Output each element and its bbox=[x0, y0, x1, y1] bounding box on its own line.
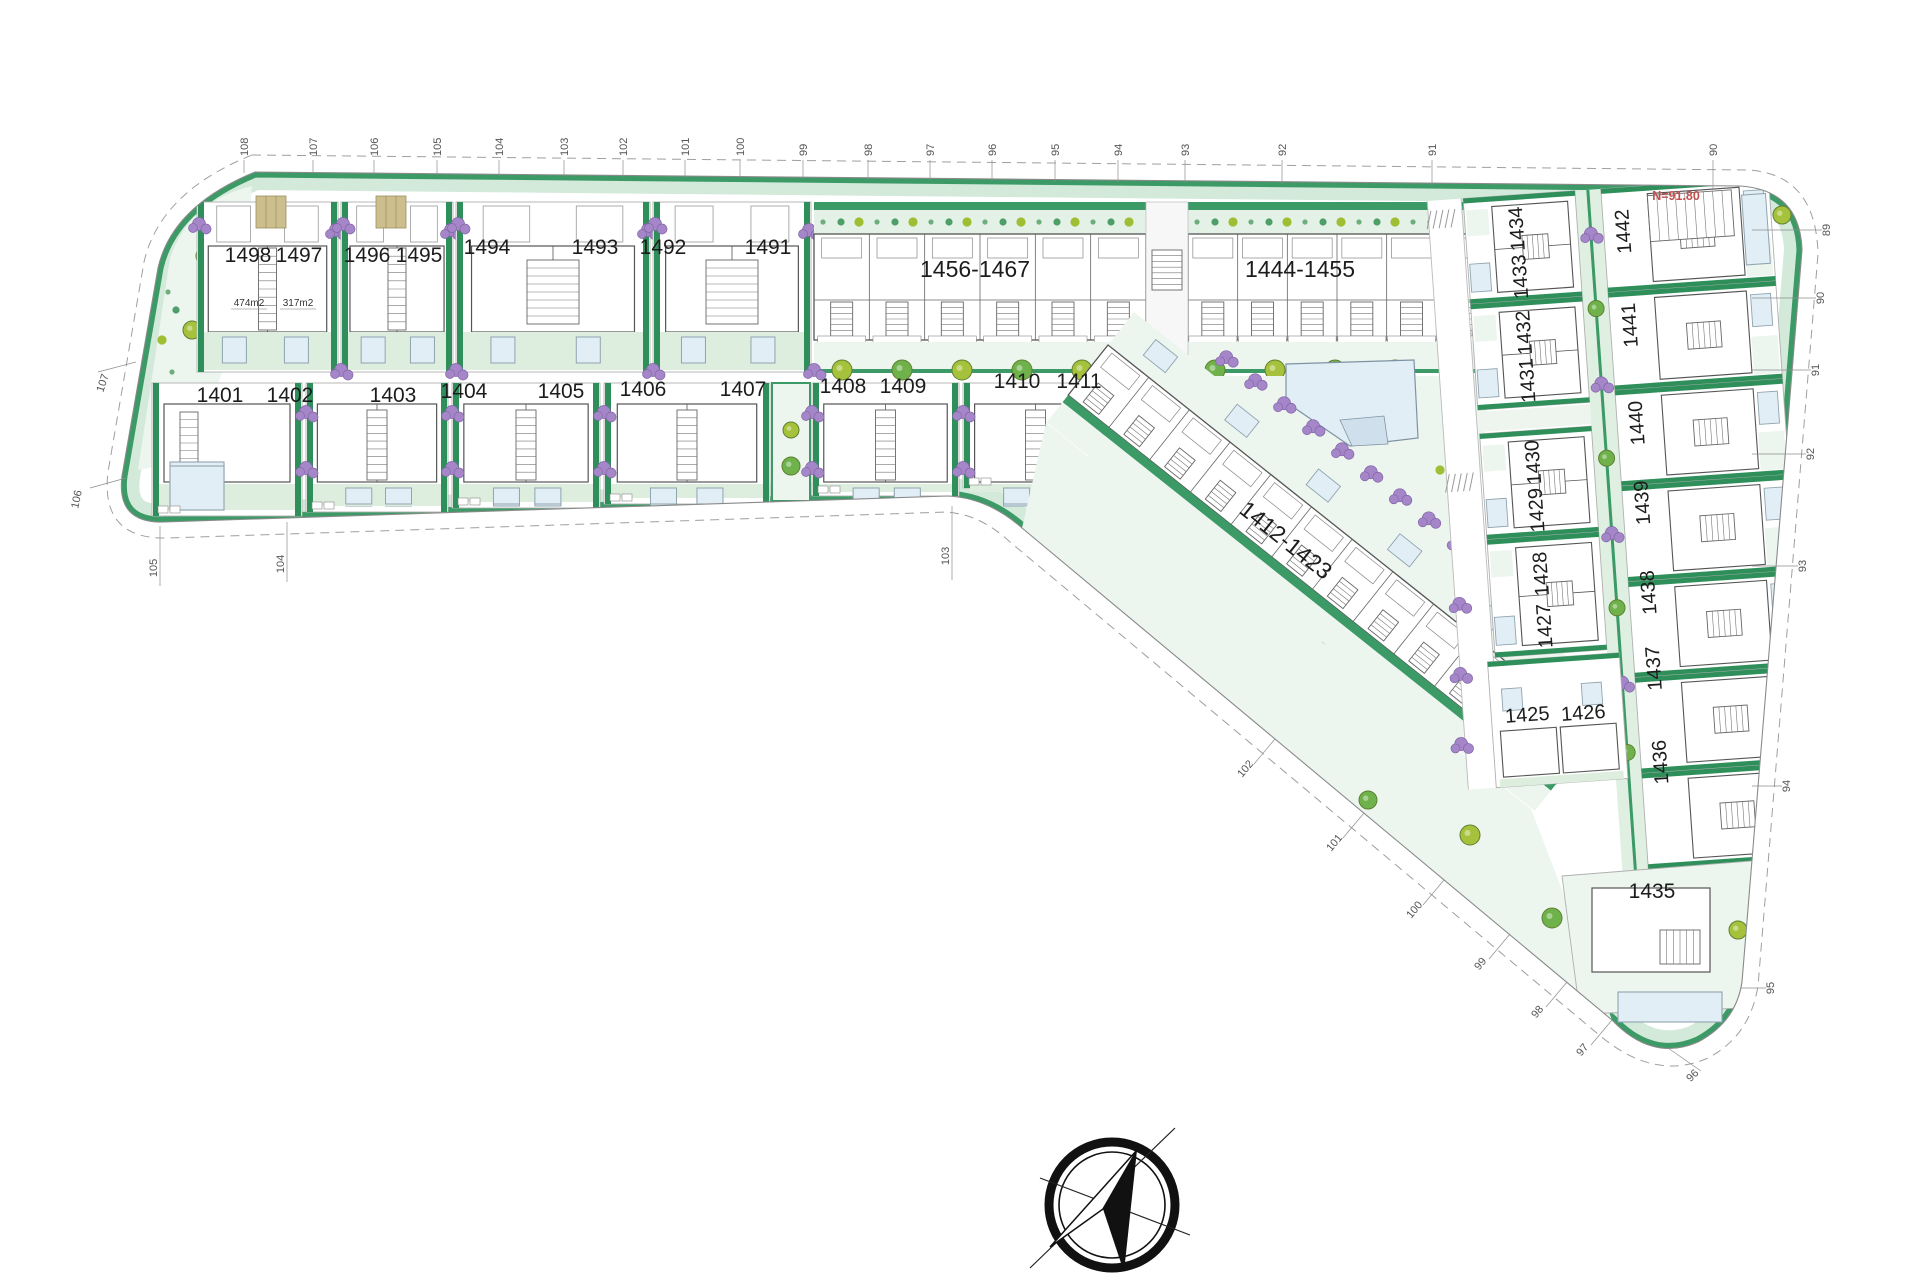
hedge bbox=[605, 383, 611, 504]
planting-dot bbox=[1090, 219, 1095, 224]
shrub bbox=[1547, 990, 1557, 1000]
plot-label-1441: 1441 bbox=[1618, 302, 1643, 348]
tree bbox=[952, 360, 972, 380]
shrub bbox=[201, 224, 211, 234]
house bbox=[1500, 727, 1559, 777]
shrub bbox=[343, 370, 353, 380]
shrub bbox=[1603, 383, 1614, 394]
pool bbox=[493, 488, 519, 504]
shrub bbox=[606, 468, 616, 478]
roof-garden-edge bbox=[814, 202, 1146, 210]
pool bbox=[222, 337, 246, 363]
planting-dot bbox=[157, 335, 166, 344]
tick-diag-99: 99 bbox=[1472, 956, 1489, 973]
shrub bbox=[442, 468, 451, 477]
shrub bbox=[189, 224, 198, 233]
plot-label-1436: 1436 bbox=[1648, 739, 1673, 785]
planting-dot bbox=[1410, 219, 1415, 224]
tick-top-99: 99 bbox=[798, 144, 810, 156]
shrub bbox=[308, 468, 318, 478]
utility-box bbox=[158, 506, 168, 513]
tick-leader-diagonal bbox=[1423, 880, 1444, 905]
utility-box bbox=[969, 478, 979, 485]
plot-label-1431: 1431 bbox=[1515, 358, 1540, 404]
plot-label-1410: 1410 bbox=[994, 370, 1041, 393]
utility-box bbox=[818, 486, 828, 493]
tree bbox=[1542, 908, 1562, 928]
tick-top-108: 108 bbox=[239, 138, 251, 156]
tick-diag-101: 101 bbox=[1324, 832, 1345, 854]
tick-diag-98: 98 bbox=[1529, 1004, 1546, 1021]
garden bbox=[1751, 335, 1780, 375]
tree-highlight bbox=[187, 326, 192, 331]
plot-label-1407: 1407 bbox=[720, 378, 767, 401]
plot-label-1498: 1498 bbox=[225, 244, 272, 267]
shrub bbox=[1216, 357, 1225, 366]
terrace bbox=[932, 238, 972, 258]
row1-lot-3 bbox=[645, 202, 822, 372]
pool bbox=[1470, 263, 1492, 292]
tick-top-97: 97 bbox=[925, 144, 937, 156]
shrub bbox=[953, 412, 962, 421]
shrub bbox=[1480, 930, 1490, 940]
tick-top-101: 101 bbox=[680, 138, 692, 156]
terrace bbox=[1292, 238, 1332, 258]
tick-right-90: 90 bbox=[1815, 292, 1827, 304]
utility-box bbox=[312, 502, 322, 509]
planting-dot bbox=[1194, 219, 1199, 224]
shrub bbox=[308, 412, 318, 422]
plot-label-1440: 1440 bbox=[1625, 400, 1650, 446]
pool bbox=[1618, 992, 1722, 1022]
shrub bbox=[1360, 472, 1369, 481]
tree bbox=[1460, 825, 1480, 845]
plot-label-1401: 1401 bbox=[197, 384, 244, 407]
terrace bbox=[410, 206, 437, 242]
plot-label-1426: 1426 bbox=[1560, 701, 1606, 726]
pool bbox=[284, 337, 308, 363]
shrub bbox=[1431, 518, 1441, 528]
tree bbox=[1598, 450, 1615, 467]
shrub bbox=[1463, 743, 1474, 754]
shrub bbox=[1601, 533, 1611, 543]
tree-highlight bbox=[1363, 796, 1368, 801]
tick-bottom-104: 104 bbox=[275, 555, 287, 573]
garden bbox=[611, 484, 763, 498]
shrub bbox=[1418, 518, 1427, 527]
tree-highlight bbox=[1210, 365, 1216, 371]
shrub bbox=[657, 224, 667, 234]
shrub bbox=[1450, 674, 1460, 684]
terrace bbox=[877, 238, 917, 258]
tree bbox=[782, 457, 800, 475]
plot-label-1438: 1438 bbox=[1637, 570, 1662, 616]
utility-box bbox=[981, 478, 991, 485]
plot-label-1408: 1408 bbox=[820, 375, 867, 398]
shrub bbox=[1614, 532, 1625, 543]
terrace bbox=[1392, 238, 1432, 258]
planting-dot bbox=[1336, 217, 1345, 226]
terrace bbox=[1243, 238, 1283, 258]
shrub bbox=[442, 412, 451, 421]
tree-highlight bbox=[787, 426, 792, 431]
shrub bbox=[814, 468, 824, 478]
hedge bbox=[813, 383, 819, 496]
planting-dot bbox=[169, 369, 174, 374]
tick-diag-100: 100 bbox=[1404, 899, 1425, 921]
shrub bbox=[965, 412, 975, 422]
pool bbox=[751, 337, 775, 363]
plot-label-1497: 1497 bbox=[276, 244, 323, 267]
garden bbox=[1785, 814, 1814, 854]
patio bbox=[1490, 550, 1514, 577]
tick-top-104: 104 bbox=[494, 138, 506, 156]
pool bbox=[1764, 487, 1786, 520]
pool bbox=[1757, 391, 1779, 424]
tree-highlight bbox=[897, 365, 903, 371]
planting-dot bbox=[1124, 217, 1133, 226]
plot-label-1427: 1427 bbox=[1533, 603, 1558, 649]
pool bbox=[681, 337, 705, 363]
house bbox=[1560, 723, 1619, 773]
garden bbox=[1772, 622, 1801, 662]
tree-highlight bbox=[1270, 365, 1276, 371]
planting-dot bbox=[1356, 219, 1361, 224]
shrub bbox=[1245, 380, 1254, 389]
shrub bbox=[814, 412, 824, 422]
tick-leader-diagonal bbox=[1489, 934, 1510, 959]
planting-dot bbox=[837, 218, 844, 225]
tree-highlight bbox=[837, 365, 843, 371]
pergola bbox=[256, 196, 286, 228]
shrub bbox=[454, 468, 464, 478]
shrub bbox=[594, 412, 603, 421]
tick-top-100: 100 bbox=[735, 138, 747, 156]
row1-lot-2 bbox=[448, 202, 661, 372]
tick-diag-97: 97 bbox=[1574, 1042, 1591, 1059]
plot-label-1432: 1432 bbox=[1512, 310, 1537, 356]
utility-box bbox=[622, 494, 632, 501]
shrub bbox=[331, 370, 340, 379]
planting-dot bbox=[1390, 217, 1399, 226]
level-note: N=91.80 bbox=[1652, 189, 1700, 203]
planting-dot bbox=[1319, 218, 1326, 225]
plot-label-1434: 1434 bbox=[1505, 206, 1530, 252]
planting-dot bbox=[1228, 217, 1237, 226]
planting-dot bbox=[1265, 218, 1272, 225]
shrub bbox=[1315, 426, 1325, 436]
hedge bbox=[763, 383, 769, 504]
north-arrow-compass bbox=[1030, 1128, 1190, 1272]
tick-top-93: 93 bbox=[1180, 144, 1192, 156]
tick-top-92: 92 bbox=[1277, 144, 1289, 156]
plot-label-1437: 1437 bbox=[1642, 645, 1667, 691]
terrace bbox=[1193, 238, 1233, 258]
planting-dot bbox=[874, 219, 879, 224]
tick-right-94: 94 bbox=[1781, 780, 1793, 792]
tick-top-96: 96 bbox=[987, 144, 999, 156]
shrub bbox=[296, 468, 305, 477]
terrace bbox=[988, 238, 1028, 258]
shrub bbox=[1451, 744, 1461, 754]
shrub bbox=[1468, 930, 1477, 939]
planting-dot bbox=[1053, 218, 1060, 225]
pool bbox=[1486, 498, 1508, 527]
planting-dot bbox=[1302, 219, 1307, 224]
plot-label-1496: 1496 bbox=[344, 244, 391, 267]
planting-dot bbox=[854, 217, 863, 226]
tick-left-107: 107 bbox=[95, 372, 112, 393]
patio bbox=[1466, 209, 1490, 236]
tree-highlight bbox=[1547, 913, 1553, 919]
plot-label-1409: 1409 bbox=[880, 375, 927, 398]
shrub bbox=[1402, 495, 1412, 505]
row2-lot-3 bbox=[604, 383, 770, 506]
area-label-1497: 317m2 bbox=[283, 298, 314, 309]
tick-103: 103 bbox=[940, 547, 952, 565]
utility-box bbox=[458, 498, 468, 505]
terrace bbox=[1098, 238, 1138, 258]
terrace bbox=[1043, 238, 1083, 258]
plot-label-1433: 1433 bbox=[1508, 254, 1533, 300]
plot-label-1494: 1494 bbox=[464, 236, 511, 259]
tick-top-91: 91 bbox=[1427, 144, 1439, 156]
pool bbox=[491, 337, 515, 363]
shrub bbox=[454, 412, 464, 422]
tick-top-102: 102 bbox=[618, 138, 630, 156]
shrub bbox=[448, 224, 457, 233]
tick-top-90: 90 bbox=[1708, 144, 1720, 156]
planting-dot bbox=[1211, 218, 1218, 225]
plot-label-1402: 1402 bbox=[267, 384, 314, 407]
site-plan-canvas: 149814971496149514941493149214911456-146… bbox=[0, 0, 1920, 1280]
tick-right-91: 91 bbox=[1810, 364, 1822, 376]
shrub bbox=[1624, 682, 1635, 693]
shrub bbox=[1344, 449, 1354, 459]
utility-box bbox=[830, 486, 840, 493]
shrub bbox=[333, 224, 342, 233]
shrub bbox=[1257, 380, 1267, 390]
shrub bbox=[606, 412, 616, 422]
pool bbox=[346, 488, 372, 504]
tree bbox=[1773, 206, 1791, 224]
tick-right-95: 95 bbox=[1765, 982, 1777, 994]
shrub bbox=[1462, 673, 1473, 684]
planting-dot bbox=[1107, 218, 1114, 225]
plot-label-1439: 1439 bbox=[1630, 480, 1655, 526]
pool bbox=[535, 488, 561, 504]
pool bbox=[576, 337, 600, 363]
terrace bbox=[1342, 238, 1382, 258]
shrub bbox=[1228, 357, 1238, 367]
tree bbox=[1729, 921, 1747, 939]
tick-top-107: 107 bbox=[308, 138, 320, 156]
roof-garden bbox=[814, 210, 1146, 234]
shrub bbox=[953, 468, 962, 477]
tree-highlight bbox=[786, 462, 791, 467]
shrub bbox=[802, 468, 811, 477]
shrub bbox=[802, 412, 811, 421]
pool bbox=[410, 337, 434, 363]
shrub bbox=[1593, 233, 1604, 244]
pool bbox=[386, 488, 412, 504]
block-label-1456-1467: 1456-1467 bbox=[920, 256, 1030, 282]
planting-dot bbox=[1036, 219, 1041, 224]
hedge bbox=[153, 383, 159, 516]
tree-highlight bbox=[1465, 830, 1471, 836]
site-plan-svg: 149814971496149514941493149214911456-146… bbox=[0, 0, 1920, 1280]
shrub bbox=[1373, 472, 1383, 482]
pool bbox=[1494, 616, 1516, 645]
shrub bbox=[1535, 990, 1544, 999]
planting-dot bbox=[891, 218, 898, 225]
tree-highlight bbox=[1733, 926, 1738, 931]
tree bbox=[783, 422, 799, 438]
tick-leader-diagonal bbox=[1254, 739, 1275, 764]
plot-label-1404: 1404 bbox=[441, 380, 488, 403]
shrub bbox=[594, 468, 603, 477]
tick-leader-left bbox=[98, 362, 136, 372]
planting-dot bbox=[1016, 217, 1025, 226]
shrub bbox=[1449, 603, 1459, 613]
terrace bbox=[822, 238, 862, 258]
shrub bbox=[1274, 403, 1283, 412]
terrace bbox=[217, 206, 251, 242]
tick-left-106: 106 bbox=[69, 489, 85, 509]
planting-dot bbox=[962, 217, 971, 226]
pool bbox=[894, 488, 920, 504]
plot-label-1442: 1442 bbox=[1611, 208, 1636, 254]
tree bbox=[1588, 300, 1605, 317]
tick-diag-102: 102 bbox=[1235, 758, 1256, 780]
pool bbox=[1477, 369, 1499, 398]
shrub bbox=[345, 224, 355, 234]
tick-top-98: 98 bbox=[863, 144, 875, 156]
apartment-block-0 bbox=[814, 202, 1146, 372]
shrub bbox=[965, 468, 975, 478]
row2-lot-4 bbox=[812, 383, 959, 506]
shrub bbox=[1389, 495, 1398, 504]
tick-top-106: 106 bbox=[369, 138, 381, 156]
utility-box bbox=[324, 502, 334, 509]
tick-leader-diagonal bbox=[1591, 1020, 1612, 1045]
tree-highlight bbox=[1777, 211, 1782, 216]
garden bbox=[463, 332, 643, 370]
shrub bbox=[1461, 603, 1472, 614]
tick-top-105: 105 bbox=[432, 138, 444, 156]
tick-top-94: 94 bbox=[1113, 144, 1125, 156]
patio bbox=[1482, 444, 1506, 471]
tick-right-93: 93 bbox=[1797, 560, 1809, 572]
shrub bbox=[645, 224, 654, 233]
plot-label-1491: 1491 bbox=[745, 236, 792, 259]
garden bbox=[1778, 718, 1807, 758]
planting-dot bbox=[1373, 218, 1380, 225]
planting-dot bbox=[1435, 465, 1444, 474]
plot-label-1429: 1429 bbox=[1525, 487, 1550, 533]
shrub bbox=[446, 370, 455, 379]
plot-label-1403: 1403 bbox=[370, 384, 417, 407]
shrub bbox=[1394, 864, 1407, 877]
shrub bbox=[1286, 403, 1296, 413]
shrub bbox=[1402, 870, 1412, 880]
shrub bbox=[804, 370, 813, 379]
planting-dot bbox=[928, 219, 933, 224]
pool bbox=[697, 488, 723, 504]
pool bbox=[170, 466, 224, 510]
stair bbox=[367, 410, 387, 480]
patio bbox=[1473, 315, 1497, 342]
garden bbox=[1758, 431, 1787, 471]
plot-label-1406: 1406 bbox=[620, 378, 667, 401]
tick-right-89: 89 bbox=[1821, 224, 1833, 236]
tick-leader-diagonal bbox=[1546, 982, 1567, 1007]
pool bbox=[1004, 488, 1030, 504]
hedge bbox=[593, 383, 599, 508]
planting-dot bbox=[908, 217, 917, 226]
green-gap bbox=[772, 383, 810, 501]
tree bbox=[1609, 1042, 1631, 1064]
plot-label-1411: 1411 bbox=[1056, 370, 1101, 393]
shrub bbox=[458, 370, 468, 380]
plot-label-1492: 1492 bbox=[640, 236, 687, 259]
plot-label-1435: 1435 bbox=[1629, 880, 1676, 903]
tick-top-103: 103 bbox=[559, 138, 571, 156]
utility-box bbox=[610, 494, 620, 501]
tick-right-92: 92 bbox=[1805, 448, 1817, 460]
pool bbox=[853, 488, 879, 504]
tick-leader-diagonal bbox=[1343, 813, 1364, 838]
planting-dot bbox=[820, 219, 825, 224]
shrub bbox=[296, 412, 305, 421]
plot-label-1428: 1428 bbox=[1529, 551, 1554, 597]
area-label-1498: 474m2 bbox=[234, 298, 265, 309]
tree bbox=[1608, 599, 1625, 616]
plot-label-1495: 1495 bbox=[396, 244, 443, 267]
tick-top-95: 95 bbox=[1050, 144, 1062, 156]
plot-label-1493: 1493 bbox=[572, 236, 619, 259]
terrace bbox=[284, 206, 318, 242]
tick-bottom-105: 105 bbox=[148, 559, 160, 577]
pool bbox=[650, 488, 676, 504]
hedge bbox=[952, 383, 958, 496]
shrub bbox=[1472, 924, 1485, 937]
stair bbox=[876, 410, 896, 480]
planting-dot bbox=[165, 289, 170, 294]
shrub bbox=[799, 230, 808, 239]
shrub bbox=[1390, 870, 1399, 879]
pool bbox=[361, 337, 385, 363]
planting-dot bbox=[1248, 219, 1253, 224]
planting-dot bbox=[1282, 217, 1291, 226]
tree-highlight bbox=[957, 365, 963, 371]
shrub bbox=[1331, 449, 1340, 458]
plot-label-1430: 1430 bbox=[1521, 439, 1546, 485]
shrub bbox=[1303, 426, 1312, 435]
tick-leader-diagonal bbox=[1668, 1048, 1701, 1071]
shrub bbox=[1580, 233, 1590, 243]
planting-dot bbox=[172, 306, 179, 313]
tree bbox=[1359, 791, 1377, 809]
shrub bbox=[460, 224, 470, 234]
pool bbox=[1742, 193, 1771, 265]
pergola bbox=[376, 196, 406, 228]
stair bbox=[516, 410, 536, 480]
shrub bbox=[1591, 383, 1601, 393]
planting-dot bbox=[1070, 217, 1079, 226]
parcel-interior bbox=[121, 172, 1816, 1064]
utility-box bbox=[170, 506, 180, 513]
